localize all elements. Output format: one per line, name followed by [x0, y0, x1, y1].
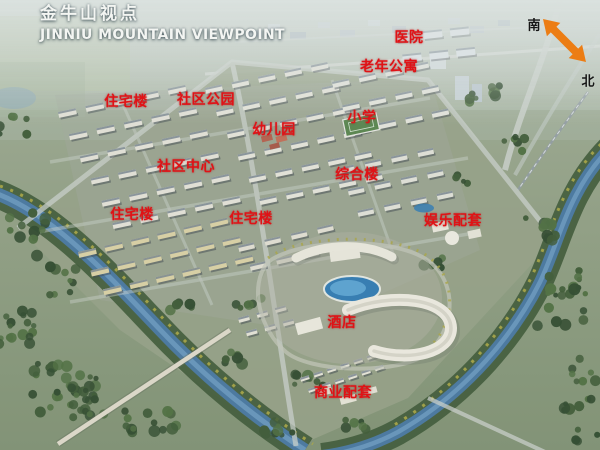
aerial-masterplan-screenshot: 金牛山视点 JINNIU MOUNTAIN VIEWPOINT 南 北 医院老年…: [0, 0, 600, 450]
map-label-entertainment-facilities: 娱乐配套: [424, 210, 482, 230]
map-label-residential-north: 住宅楼: [104, 91, 148, 111]
map-label-community-center: 社区中心: [157, 156, 215, 176]
map-label-residential-west: 住宅楼: [110, 204, 154, 224]
map-label-commercial-facilities: 商业配套: [314, 382, 372, 402]
map-label-senior-apartments: 老年公寓: [360, 56, 418, 76]
map-label-mixed-use-building: 综合楼: [335, 164, 379, 184]
map-label-hotel: 酒店: [328, 312, 357, 332]
map-label-hospital: 医院: [395, 27, 424, 47]
map-label-primary-school: 小学: [348, 107, 377, 127]
compass-north-label: 北: [581, 71, 594, 90]
viewpoint-title: 金牛山视点 JINNIU MOUNTAIN VIEWPOINT: [40, 4, 285, 45]
map-label-kindergarten: 幼儿园: [252, 119, 296, 139]
map-label-community-park: 社区公园: [177, 89, 235, 109]
title-chinese: 金牛山视点: [40, 4, 285, 25]
masterplan-rendering: [0, 0, 600, 450]
map-label-residential-mid: 住宅楼: [229, 208, 273, 228]
compass-south-label: 南: [527, 15, 540, 34]
title-english: JINNIU MOUNTAIN VIEWPOINT: [40, 27, 285, 45]
